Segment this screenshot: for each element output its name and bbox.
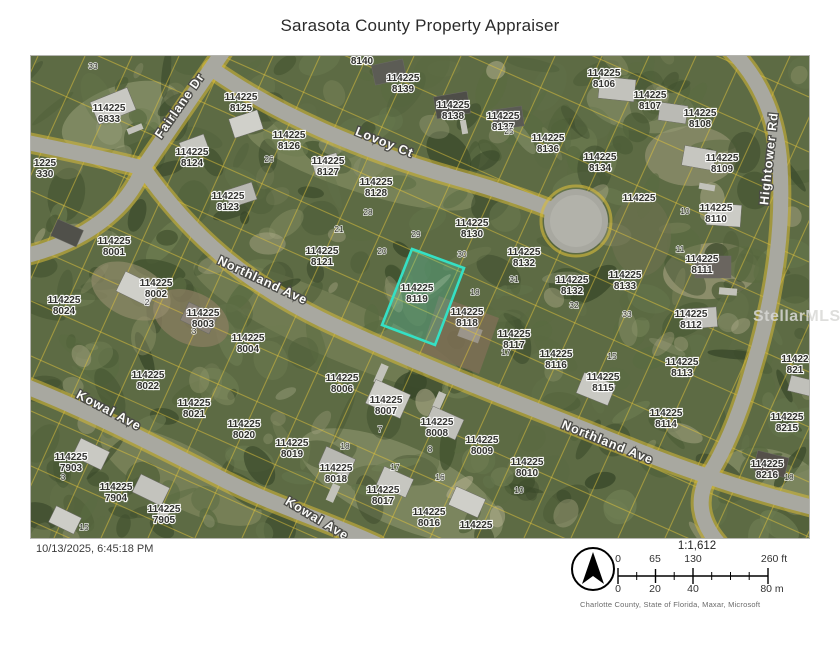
lot-number: 17	[390, 462, 400, 472]
scale-m-80: 80 m	[760, 583, 783, 595]
scale-ft-260: 260 ft	[761, 553, 787, 565]
attribution: Charlotte County, State of Florida, Maxa…	[580, 600, 760, 609]
parcel-label: 8140	[351, 56, 374, 67]
page-title: Sarasota County Property Appraiser	[0, 16, 840, 36]
aerial-map-svg[interactable]: 1142256833122533011422581251142258126114…	[31, 56, 809, 538]
scale-widget: 1:1,612 0 65 130 260 ft 0 20 40 80 m C	[566, 540, 830, 612]
parcel-label: 114225	[623, 193, 656, 204]
scale-ft-65: 65	[649, 553, 661, 565]
lot-number: 25	[504, 126, 514, 136]
lot-number: 31	[509, 274, 519, 284]
lot-number: 21	[334, 224, 344, 234]
map-view[interactable]: 1142256833122533011422581251142258126114…	[30, 55, 810, 539]
lot-number: 29	[411, 229, 421, 239]
scale-ratio: 1:1,612	[678, 540, 716, 552]
lot-number: 16	[435, 472, 445, 482]
scale-m-20: 20	[649, 583, 661, 595]
lot-number: 32	[569, 300, 579, 310]
lot-number: 15	[79, 522, 89, 532]
scale-m-0: 0	[615, 583, 621, 595]
lot-number: 10	[680, 206, 690, 216]
lot-number: 26	[264, 154, 274, 164]
timestamp: 10/13/2025, 6:45:18 PM	[36, 543, 153, 555]
parcel-label: 1225330	[34, 158, 57, 180]
lot-number: 8	[428, 444, 433, 454]
cul-de-sac	[541, 186, 611, 256]
lot-number: 17	[501, 347, 511, 357]
lot-number: 7	[378, 424, 383, 434]
lot-number: 30	[457, 249, 467, 259]
lot-number: 18	[784, 472, 794, 482]
lot-number: 33	[88, 61, 98, 71]
lot-number: 28	[363, 207, 373, 217]
parcel-label: 114225	[460, 520, 493, 531]
lot-number: 11	[676, 244, 685, 254]
lot-number: 18	[340, 441, 350, 451]
lot-number: 33	[622, 309, 632, 319]
lot-number: 20	[377, 246, 387, 256]
appraiser-print-page: Sarasota County Property Appraiser	[0, 0, 840, 649]
watermark: StellarMLS	[753, 308, 840, 326]
lot-number: 3	[61, 472, 66, 482]
lot-number: 3	[192, 326, 197, 336]
scale-ft-0: 0	[615, 553, 621, 565]
lot-number: 2	[145, 297, 150, 307]
lot-number: 18	[470, 287, 480, 297]
scale-m-40: 40	[687, 583, 699, 595]
lot-number: 15	[607, 351, 617, 361]
scale-ft-130: 130	[684, 553, 702, 565]
lot-number: 10	[514, 485, 524, 495]
